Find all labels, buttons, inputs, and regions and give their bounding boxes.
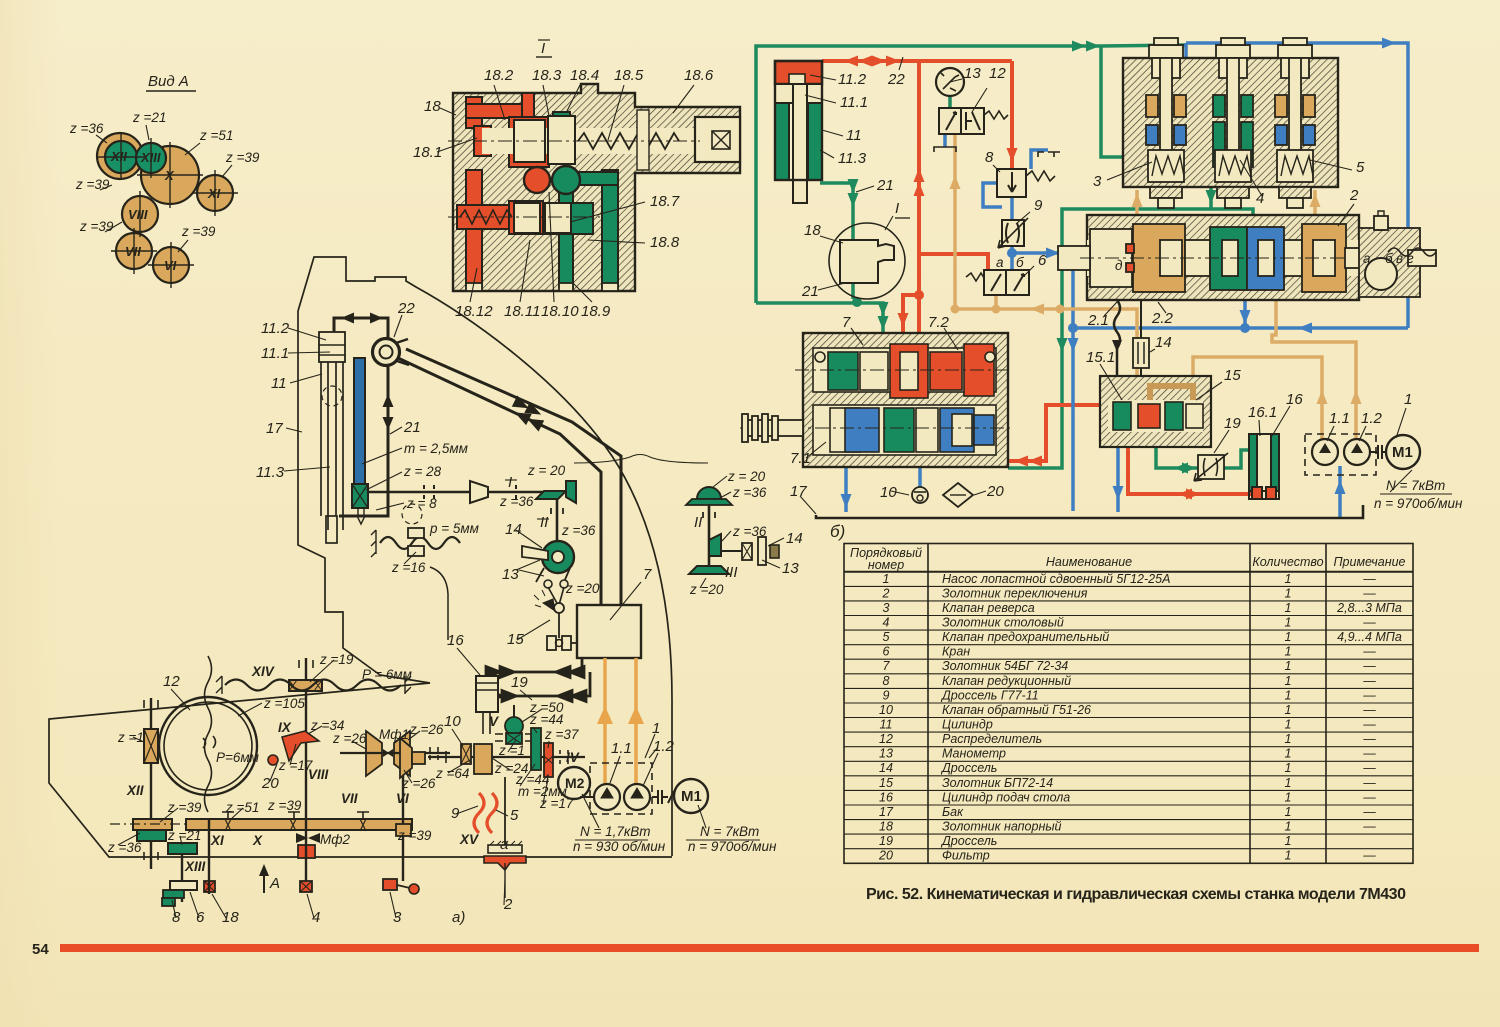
svg-text:5: 5	[1356, 159, 1365, 176]
svg-text:XII: XII	[110, 149, 127, 164]
svg-text:1: 1	[1285, 703, 1292, 717]
svg-text:1: 1	[1285, 645, 1292, 659]
svg-text:XIII: XIII	[184, 859, 206, 874]
svg-text:z =37: z =37	[544, 727, 579, 742]
svg-text:XV: XV	[459, 832, 479, 847]
svg-text:21: 21	[403, 419, 421, 436]
svg-text:20: 20	[261, 775, 279, 792]
svg-text:М1: М1	[1392, 444, 1413, 461]
svg-text:12: 12	[989, 65, 1006, 82]
svg-text:54: 54	[32, 941, 49, 958]
svg-text:n = 930 об/мин: n = 930 об/мин	[573, 839, 666, 854]
svg-text:z = 20: z = 20	[527, 463, 566, 478]
svg-text:a: a	[500, 836, 508, 853]
svg-text:17: 17	[790, 483, 807, 500]
svg-text:Примечание: Примечание	[1334, 555, 1406, 569]
svg-text:VI: VI	[164, 258, 177, 273]
svg-text:1.1: 1.1	[1329, 410, 1350, 427]
svg-text:m = 2,5мм: m = 2,5мм	[404, 441, 468, 456]
svg-text:z =39: z =39	[225, 150, 260, 165]
svg-text:18: 18	[424, 98, 441, 115]
svg-text:6: 6	[883, 645, 890, 659]
svg-text:z =1: z =1	[117, 730, 144, 745]
svg-text:4: 4	[1256, 190, 1264, 207]
svg-text:11: 11	[846, 127, 862, 144]
svg-text:14: 14	[505, 521, 522, 538]
svg-text:а: а	[1363, 251, 1371, 266]
svg-text:18.2: 18.2	[484, 67, 514, 84]
svg-text:а): а)	[452, 909, 465, 926]
svg-text:XIV: XIV	[251, 664, 275, 679]
svg-text:11: 11	[880, 718, 893, 732]
svg-text:—: —	[1362, 616, 1376, 630]
svg-text:I: I	[541, 40, 545, 57]
svg-text:Кран: Кран	[942, 645, 970, 659]
svg-text:9: 9	[1034, 197, 1043, 214]
svg-text:11.3: 11.3	[838, 150, 867, 167]
svg-text:Золотник столовый: Золотник столовый	[942, 616, 1064, 630]
svg-text:1: 1	[1285, 790, 1292, 804]
svg-text:22: 22	[887, 71, 905, 88]
svg-text:I: I	[508, 474, 512, 491]
svg-text:18.7: 18.7	[650, 193, 680, 210]
svg-text:19: 19	[1224, 415, 1241, 432]
svg-text:Золотник напорный: Золотник напорный	[942, 820, 1062, 834]
svg-text:в: в	[1396, 251, 1403, 266]
svg-text:11: 11	[271, 375, 287, 392]
svg-text:номер: номер	[868, 558, 904, 572]
svg-text:z =64: z =64	[435, 766, 469, 781]
svg-text:18.10: 18.10	[541, 303, 579, 320]
svg-text:18.3: 18.3	[532, 67, 562, 84]
svg-text:9: 9	[883, 688, 890, 702]
svg-text:IV: IV	[566, 750, 580, 765]
svg-text:18.4: 18.4	[570, 67, 599, 84]
svg-text:I: I	[895, 200, 899, 217]
svg-text:М2: М2	[565, 775, 585, 791]
svg-text:z =16: z =16	[391, 560, 426, 575]
svg-text:II: II	[694, 514, 702, 531]
svg-text:15: 15	[879, 776, 893, 790]
svg-text:—: —	[1362, 703, 1376, 717]
svg-text:М1: М1	[681, 788, 702, 805]
svg-text:20: 20	[878, 849, 893, 863]
svg-text:1: 1	[1285, 718, 1292, 732]
svg-text:Клапан обратный Г51-26: Клапан обратный Г51-26	[942, 703, 1091, 717]
svg-text:2: 2	[1349, 187, 1359, 204]
svg-text:z =1: z =1	[498, 743, 525, 758]
svg-text:—: —	[1362, 732, 1376, 746]
svg-text:V: V	[489, 714, 499, 729]
svg-text:22: 22	[397, 300, 415, 317]
svg-text:1: 1	[1285, 732, 1292, 746]
svg-text:б): б)	[830, 522, 845, 541]
svg-text:2: 2	[882, 586, 890, 600]
svg-text:18.6: 18.6	[684, 67, 714, 84]
svg-text:Бак: Бак	[942, 805, 964, 819]
svg-text:z =21: z =21	[132, 110, 166, 125]
svg-text:z =36: z =36	[107, 840, 142, 855]
svg-text:1.2: 1.2	[1361, 410, 1383, 427]
svg-text:z =36: z =36	[732, 524, 767, 539]
svg-text:5: 5	[883, 630, 890, 644]
svg-text:z =21: z =21	[167, 828, 201, 843]
svg-text:16: 16	[1286, 391, 1303, 408]
svg-text:z =26: z =26	[401, 776, 436, 791]
svg-text:11.3: 11.3	[256, 464, 285, 481]
svg-text:18: 18	[804, 222, 821, 239]
svg-text:18.9: 18.9	[581, 303, 611, 320]
svg-text:3: 3	[1093, 173, 1102, 190]
svg-text:z =39: z =39	[75, 177, 110, 192]
svg-text:16.1: 16.1	[1248, 404, 1277, 421]
svg-text:II: II	[540, 514, 548, 531]
svg-text:VII: VII	[341, 791, 358, 806]
svg-text:z =39: z =39	[181, 224, 216, 239]
svg-text:Насос лопастной сдвоенный 5Г: Насос лопастной сдвоенный 5Г12-25А	[942, 572, 1170, 586]
svg-text:6: 6	[196, 909, 205, 926]
svg-text:—: —	[1362, 659, 1376, 673]
svg-text:2.2: 2.2	[1151, 310, 1174, 327]
svg-text:10: 10	[880, 484, 897, 501]
svg-text:6: 6	[1038, 252, 1047, 269]
svg-text:z = 28: z = 28	[403, 464, 442, 479]
svg-text:z =20: z =20	[565, 581, 600, 596]
svg-text:15: 15	[507, 631, 524, 648]
svg-text:z =105: z =105	[263, 696, 305, 711]
svg-text:VIII: VIII	[128, 207, 148, 222]
svg-text:—: —	[1362, 674, 1376, 688]
svg-text:Дроссель: Дроссель	[940, 761, 997, 775]
svg-text:IX: IX	[278, 720, 292, 735]
svg-text:14: 14	[786, 530, 803, 547]
svg-text:Цилиндр подач стола: Цилиндр подач стола	[942, 790, 1070, 804]
svg-text:1: 1	[1285, 834, 1292, 848]
svg-text:VIII: VIII	[308, 767, 329, 782]
svg-text:a: a	[996, 255, 1004, 270]
svg-text:18.1: 18.1	[413, 144, 442, 161]
svg-text:1: 1	[1285, 849, 1292, 863]
svg-text:—: —	[1362, 586, 1376, 600]
svg-text:15.1: 15.1	[1086, 349, 1115, 366]
svg-text:1: 1	[883, 572, 890, 586]
svg-text:11.1: 11.1	[840, 94, 868, 111]
svg-text:1.1: 1.1	[611, 740, 632, 757]
svg-text:z = 20: z = 20	[727, 469, 766, 484]
svg-text:N = 7кВт: N = 7кВт	[700, 824, 759, 839]
svg-text:1: 1	[1285, 820, 1292, 834]
svg-text:17: 17	[879, 805, 894, 819]
svg-text:13: 13	[964, 65, 981, 82]
svg-text:Цилиндр: Цилиндр	[942, 718, 993, 732]
svg-text:4: 4	[312, 909, 320, 926]
svg-text:7.2: 7.2	[928, 314, 950, 331]
svg-text:Количество: Количество	[1252, 555, 1323, 569]
svg-text:Мф2: Мф2	[320, 832, 351, 847]
svg-text:2,8...3 МПа: 2,8...3 МПа	[1336, 601, 1402, 615]
svg-text:18.8: 18.8	[650, 234, 680, 251]
svg-text:Наименование: Наименование	[1046, 555, 1132, 569]
svg-text:7: 7	[883, 659, 891, 673]
svg-text:2.1: 2.1	[1087, 312, 1109, 329]
svg-text:z =39: z =39	[79, 219, 114, 234]
svg-text:Распределитель: Распределитель	[942, 732, 1042, 746]
svg-text:11.1: 11.1	[261, 345, 289, 362]
svg-text:—: —	[1362, 688, 1376, 702]
svg-text:N = 7кВт: N = 7кВт	[1386, 478, 1445, 493]
svg-text:15: 15	[1224, 367, 1241, 384]
svg-text:Золотник 54БГ 72-34: Золотник 54БГ 72-34	[942, 659, 1068, 673]
svg-text:—: —	[1362, 776, 1376, 790]
svg-text:3: 3	[883, 601, 890, 615]
svg-text:XI: XI	[207, 186, 221, 201]
svg-text:4,9...4 МПа: 4,9...4 МПа	[1337, 630, 1402, 644]
svg-text:Вид А: Вид А	[148, 73, 189, 90]
svg-text:Рис. 52. Кинематическая и гидр: Рис. 52. Кинематическая и гидравлическая…	[866, 886, 1406, 903]
svg-text:X: X	[164, 168, 175, 183]
svg-text:VII: VII	[125, 244, 141, 259]
svg-text:—: —	[1362, 805, 1376, 819]
svg-text:1.2: 1.2	[653, 738, 675, 755]
svg-text:XII: XII	[126, 783, 144, 798]
svg-text:z =36: z =36	[499, 494, 534, 509]
svg-text:10: 10	[444, 713, 461, 730]
svg-text:Клапан реверса: Клапан реверса	[942, 601, 1035, 615]
svg-text:1: 1	[1285, 630, 1292, 644]
svg-text:—: —	[1362, 790, 1376, 804]
svg-text:—: —	[1362, 718, 1376, 732]
svg-text:z =39: z =39	[267, 798, 302, 813]
svg-text:z =39: z =39	[397, 828, 432, 843]
svg-text:10: 10	[879, 703, 893, 717]
svg-text:11.2: 11.2	[838, 71, 867, 88]
svg-text:7.1: 7.1	[790, 450, 811, 467]
svg-text:1: 1	[1285, 659, 1292, 673]
svg-text:—: —	[1362, 747, 1376, 761]
svg-text:Мф1: Мф1	[379, 727, 409, 742]
svg-text:1: 1	[1285, 776, 1292, 790]
svg-text:XI: XI	[210, 833, 224, 848]
svg-text:18: 18	[879, 820, 893, 834]
svg-text:z =51: z =51	[225, 800, 259, 815]
svg-text:б: б	[1385, 251, 1393, 266]
svg-text:16: 16	[879, 790, 893, 804]
svg-text:N = 1,7кВт: N = 1,7кВт	[580, 824, 651, 839]
svg-text:1: 1	[1285, 616, 1292, 630]
svg-text:21: 21	[801, 283, 819, 300]
svg-text:13: 13	[502, 566, 519, 583]
svg-text:z =51: z =51	[199, 128, 233, 143]
svg-text:18.5: 18.5	[614, 67, 644, 84]
svg-text:12: 12	[879, 732, 893, 746]
svg-text:16: 16	[447, 632, 464, 649]
svg-text:—: —	[1362, 572, 1376, 586]
svg-text:4: 4	[883, 616, 890, 630]
svg-text:z =36: z =36	[69, 121, 104, 136]
svg-text:z =20: z =20	[689, 582, 724, 597]
svg-text:18: 18	[222, 909, 239, 926]
svg-text:Клапан редукционный: Клапан редукционный	[942, 674, 1071, 688]
svg-text:д: д	[1115, 258, 1123, 273]
svg-text:X: X	[252, 833, 263, 848]
svg-text:VI: VI	[396, 791, 409, 806]
svg-text:—: —	[1362, 820, 1376, 834]
svg-text:8: 8	[883, 674, 890, 688]
svg-text:А: А	[269, 875, 280, 892]
svg-text:p = 5мм: p = 5мм	[429, 521, 479, 536]
svg-text:P = 6мм: P = 6мм	[362, 667, 412, 682]
svg-text:z =36: z =36	[732, 485, 767, 500]
svg-text:13: 13	[879, 747, 893, 761]
svg-text:8: 8	[985, 149, 994, 166]
svg-text:—: —	[1362, 645, 1376, 659]
svg-text:14: 14	[879, 761, 893, 775]
svg-text:1: 1	[1285, 572, 1292, 586]
svg-text:1: 1	[1285, 601, 1292, 615]
svg-text:Золотник БП72-14: Золотник БП72-14	[942, 776, 1053, 790]
svg-text:P=6мм: P=6мм	[216, 750, 259, 765]
svg-text:Дроссель: Дроссель	[940, 834, 997, 848]
svg-text:z =19: z =19	[319, 652, 354, 667]
svg-text:1: 1	[1404, 391, 1412, 408]
svg-text:z =26: z =26	[332, 731, 367, 746]
svg-text:19: 19	[511, 674, 528, 691]
svg-text:19: 19	[879, 834, 893, 848]
svg-text:7: 7	[643, 566, 652, 583]
svg-text:Дроссель Г77-11: Дроссель Г77-11	[940, 688, 1039, 702]
svg-text:Клапан предохранительный: Клапан предохранительный	[942, 630, 1109, 644]
svg-text:12: 12	[163, 673, 180, 690]
svg-text:1: 1	[1285, 747, 1292, 761]
svg-text:z =36: z =36	[561, 523, 596, 538]
svg-text:n = 970об/мин: n = 970об/мин	[1374, 496, 1463, 511]
svg-text:1: 1	[1285, 761, 1292, 775]
svg-text:8: 8	[172, 909, 181, 926]
svg-text:17: 17	[266, 420, 283, 437]
svg-text:1: 1	[1285, 586, 1292, 600]
svg-text:III: III	[725, 564, 738, 581]
svg-text:Золотник переключения: Золотник переключения	[942, 586, 1088, 600]
svg-text:—: —	[1362, 761, 1376, 775]
svg-text:14: 14	[1155, 334, 1172, 351]
svg-text:1: 1	[1285, 688, 1292, 702]
svg-text:XIII: XIII	[140, 150, 161, 165]
svg-text:—: —	[1362, 849, 1376, 863]
svg-text:г: г	[1407, 251, 1414, 266]
svg-text:Манометр: Манометр	[942, 747, 1006, 761]
svg-text:21: 21	[876, 177, 894, 194]
svg-text:20: 20	[986, 483, 1004, 500]
svg-text:5: 5	[510, 807, 519, 824]
svg-text:7: 7	[842, 314, 851, 331]
svg-text:1: 1	[652, 720, 660, 737]
svg-text:13: 13	[782, 560, 799, 577]
svg-text:1: 1	[1285, 674, 1292, 688]
svg-text:18.11: 18.11	[504, 303, 540, 320]
svg-text:11.2: 11.2	[261, 320, 290, 337]
svg-text:б: б	[1016, 255, 1024, 270]
svg-text:n = 970об/мин: n = 970об/мин	[688, 839, 777, 854]
svg-text:Фильтр: Фильтр	[942, 849, 990, 863]
svg-text:18.12: 18.12	[455, 303, 493, 320]
svg-text:1: 1	[1285, 805, 1292, 819]
